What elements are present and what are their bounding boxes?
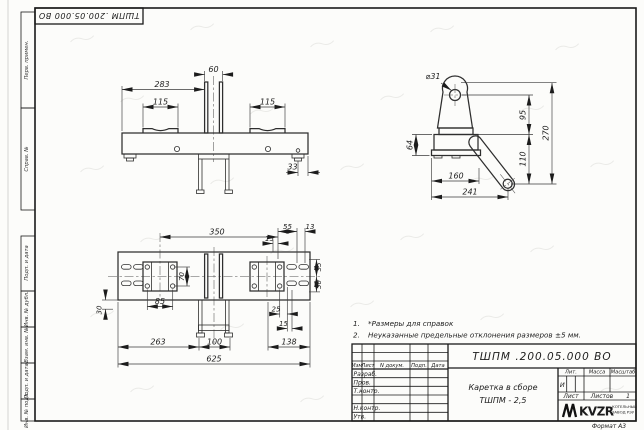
- lit-label: Лит.: [564, 370, 577, 376]
- dim-front-115-left: 115: [153, 98, 168, 107]
- col-podp: Подп.: [411, 363, 427, 369]
- company-logo: KVZR КОТЕЛЬНЫЙ ЗАВОД РЭУ: [563, 404, 637, 419]
- logo-line1: КОТЕЛЬНЫЙ: [612, 404, 637, 409]
- dim-plan-13: 13: [306, 223, 315, 231]
- logo-mark: KVZR: [579, 405, 614, 419]
- row-tkontr: Т.контр.: [354, 388, 380, 395]
- sheet-label: Лист: [562, 393, 579, 400]
- corner-code-stamp: ТШПМ .200.05.000 ВО: [35, 8, 143, 24]
- stamp-inv-dubl: Инв. № дубл.: [24, 291, 30, 327]
- scale-label: Масштаб: [611, 370, 636, 376]
- front-view: [122, 76, 308, 194]
- logo-line2: ЗАВОД РЭУ: [612, 410, 635, 415]
- sheets-value: 1: [626, 393, 630, 400]
- technical-notes: 1. *Размеры для справок 2. Неуказанные п…: [353, 319, 581, 340]
- note-2-text: Неуказанные предельные отклонения размер…: [368, 331, 581, 340]
- dim-plan-30: 30: [96, 305, 104, 314]
- row-razrab: Разраб.: [354, 371, 378, 378]
- dim-plan-85: 85: [155, 297, 165, 306]
- col-list: Лист: [360, 363, 375, 369]
- dim-plan-15-top: 15: [265, 235, 274, 243]
- dim-plan-70: 70: [178, 272, 186, 281]
- col-data: Дата: [430, 363, 444, 369]
- dim-front-33: 33: [287, 163, 297, 172]
- note-1-text: *Размеры для справок: [368, 319, 454, 328]
- row-nkontr: Н.контр.: [354, 405, 381, 412]
- part-name-line1: Каретка в сборе: [468, 383, 537, 392]
- dim-side-64: 64: [406, 140, 415, 150]
- dim-plan-350: 350: [209, 227, 224, 236]
- lit-value: И: [560, 381, 565, 389]
- corner-code-text: ТШПМ .200.05.000 ВО: [38, 11, 139, 20]
- sheets-label: Листов: [590, 393, 614, 400]
- dim-side-95: 95: [519, 110, 528, 120]
- dim-side-270: 270: [542, 125, 551, 140]
- dim-plan-55-right: 55: [315, 262, 323, 271]
- watermark-pattern: [70, 22, 624, 404]
- plan-view-dimensions: 350 15 55 13 70 55 50 85 25 15: [96, 223, 323, 368]
- dim-front-115-right: 115: [260, 98, 275, 107]
- dim-plan-15-bottom: 15: [279, 320, 288, 328]
- side-view: [432, 76, 523, 199]
- stamp-podp-data-1: Подп. и дата: [24, 245, 30, 280]
- dim-plan-625: 625: [206, 354, 221, 363]
- dim-front-60: 60: [208, 65, 218, 74]
- part-name-line2: ТШПМ - 2,5: [479, 396, 526, 405]
- note-2-number: 2.: [353, 331, 360, 340]
- drawing-sheet: Перв. примен. Справ. № Подп. и дата Инв.…: [0, 0, 644, 430]
- side-view-dimensions: ⌀31 95 110 270 64 160 241: [406, 72, 557, 200]
- dim-plan-55-top: 55: [283, 223, 292, 231]
- dim-plan-100: 100: [207, 337, 222, 346]
- row-prov: Пров.: [354, 379, 372, 386]
- drawing-canvas: Перв. примен. Справ. № Подп. и дата Инв.…: [0, 0, 644, 430]
- spring-icon: [563, 404, 576, 417]
- title-block: Изм Лист N докум. Подп. Дата Разраб. Про…: [352, 344, 637, 421]
- stamp-sprav-no: Справ. №: [24, 146, 30, 171]
- dim-side-dia31: ⌀31: [426, 72, 441, 81]
- col-ndoc: N докум.: [380, 363, 404, 369]
- dim-side-110: 110: [519, 151, 528, 166]
- stamp-inv-podl: Инв. № подл.: [24, 392, 30, 428]
- dim-side-160: 160: [448, 172, 463, 181]
- doc-code: ТШПМ .200.05.000 ВО: [472, 351, 611, 363]
- dim-plan-50-right: 50: [315, 280, 323, 289]
- mass-label: Масса: [589, 370, 606, 376]
- row-utv: Утв.: [354, 413, 367, 420]
- stamp-perv-primen: Перв. примен.: [24, 41, 30, 80]
- stamp-vzam-inv: Взам. инв. №: [24, 327, 30, 362]
- note-1-number: 1.: [353, 319, 360, 328]
- dim-side-241: 241: [462, 188, 477, 197]
- margin-stamps: Перв. примен. Справ. № Подп. и дата Инв.…: [21, 12, 35, 428]
- dim-plan-263: 263: [150, 337, 165, 346]
- dim-front-283: 283: [154, 80, 169, 89]
- plan-view: [108, 233, 320, 343]
- dim-plan-138: 138: [281, 337, 296, 346]
- format-note: Формат А3: [592, 423, 626, 430]
- dim-plan-25: 25: [272, 306, 281, 314]
